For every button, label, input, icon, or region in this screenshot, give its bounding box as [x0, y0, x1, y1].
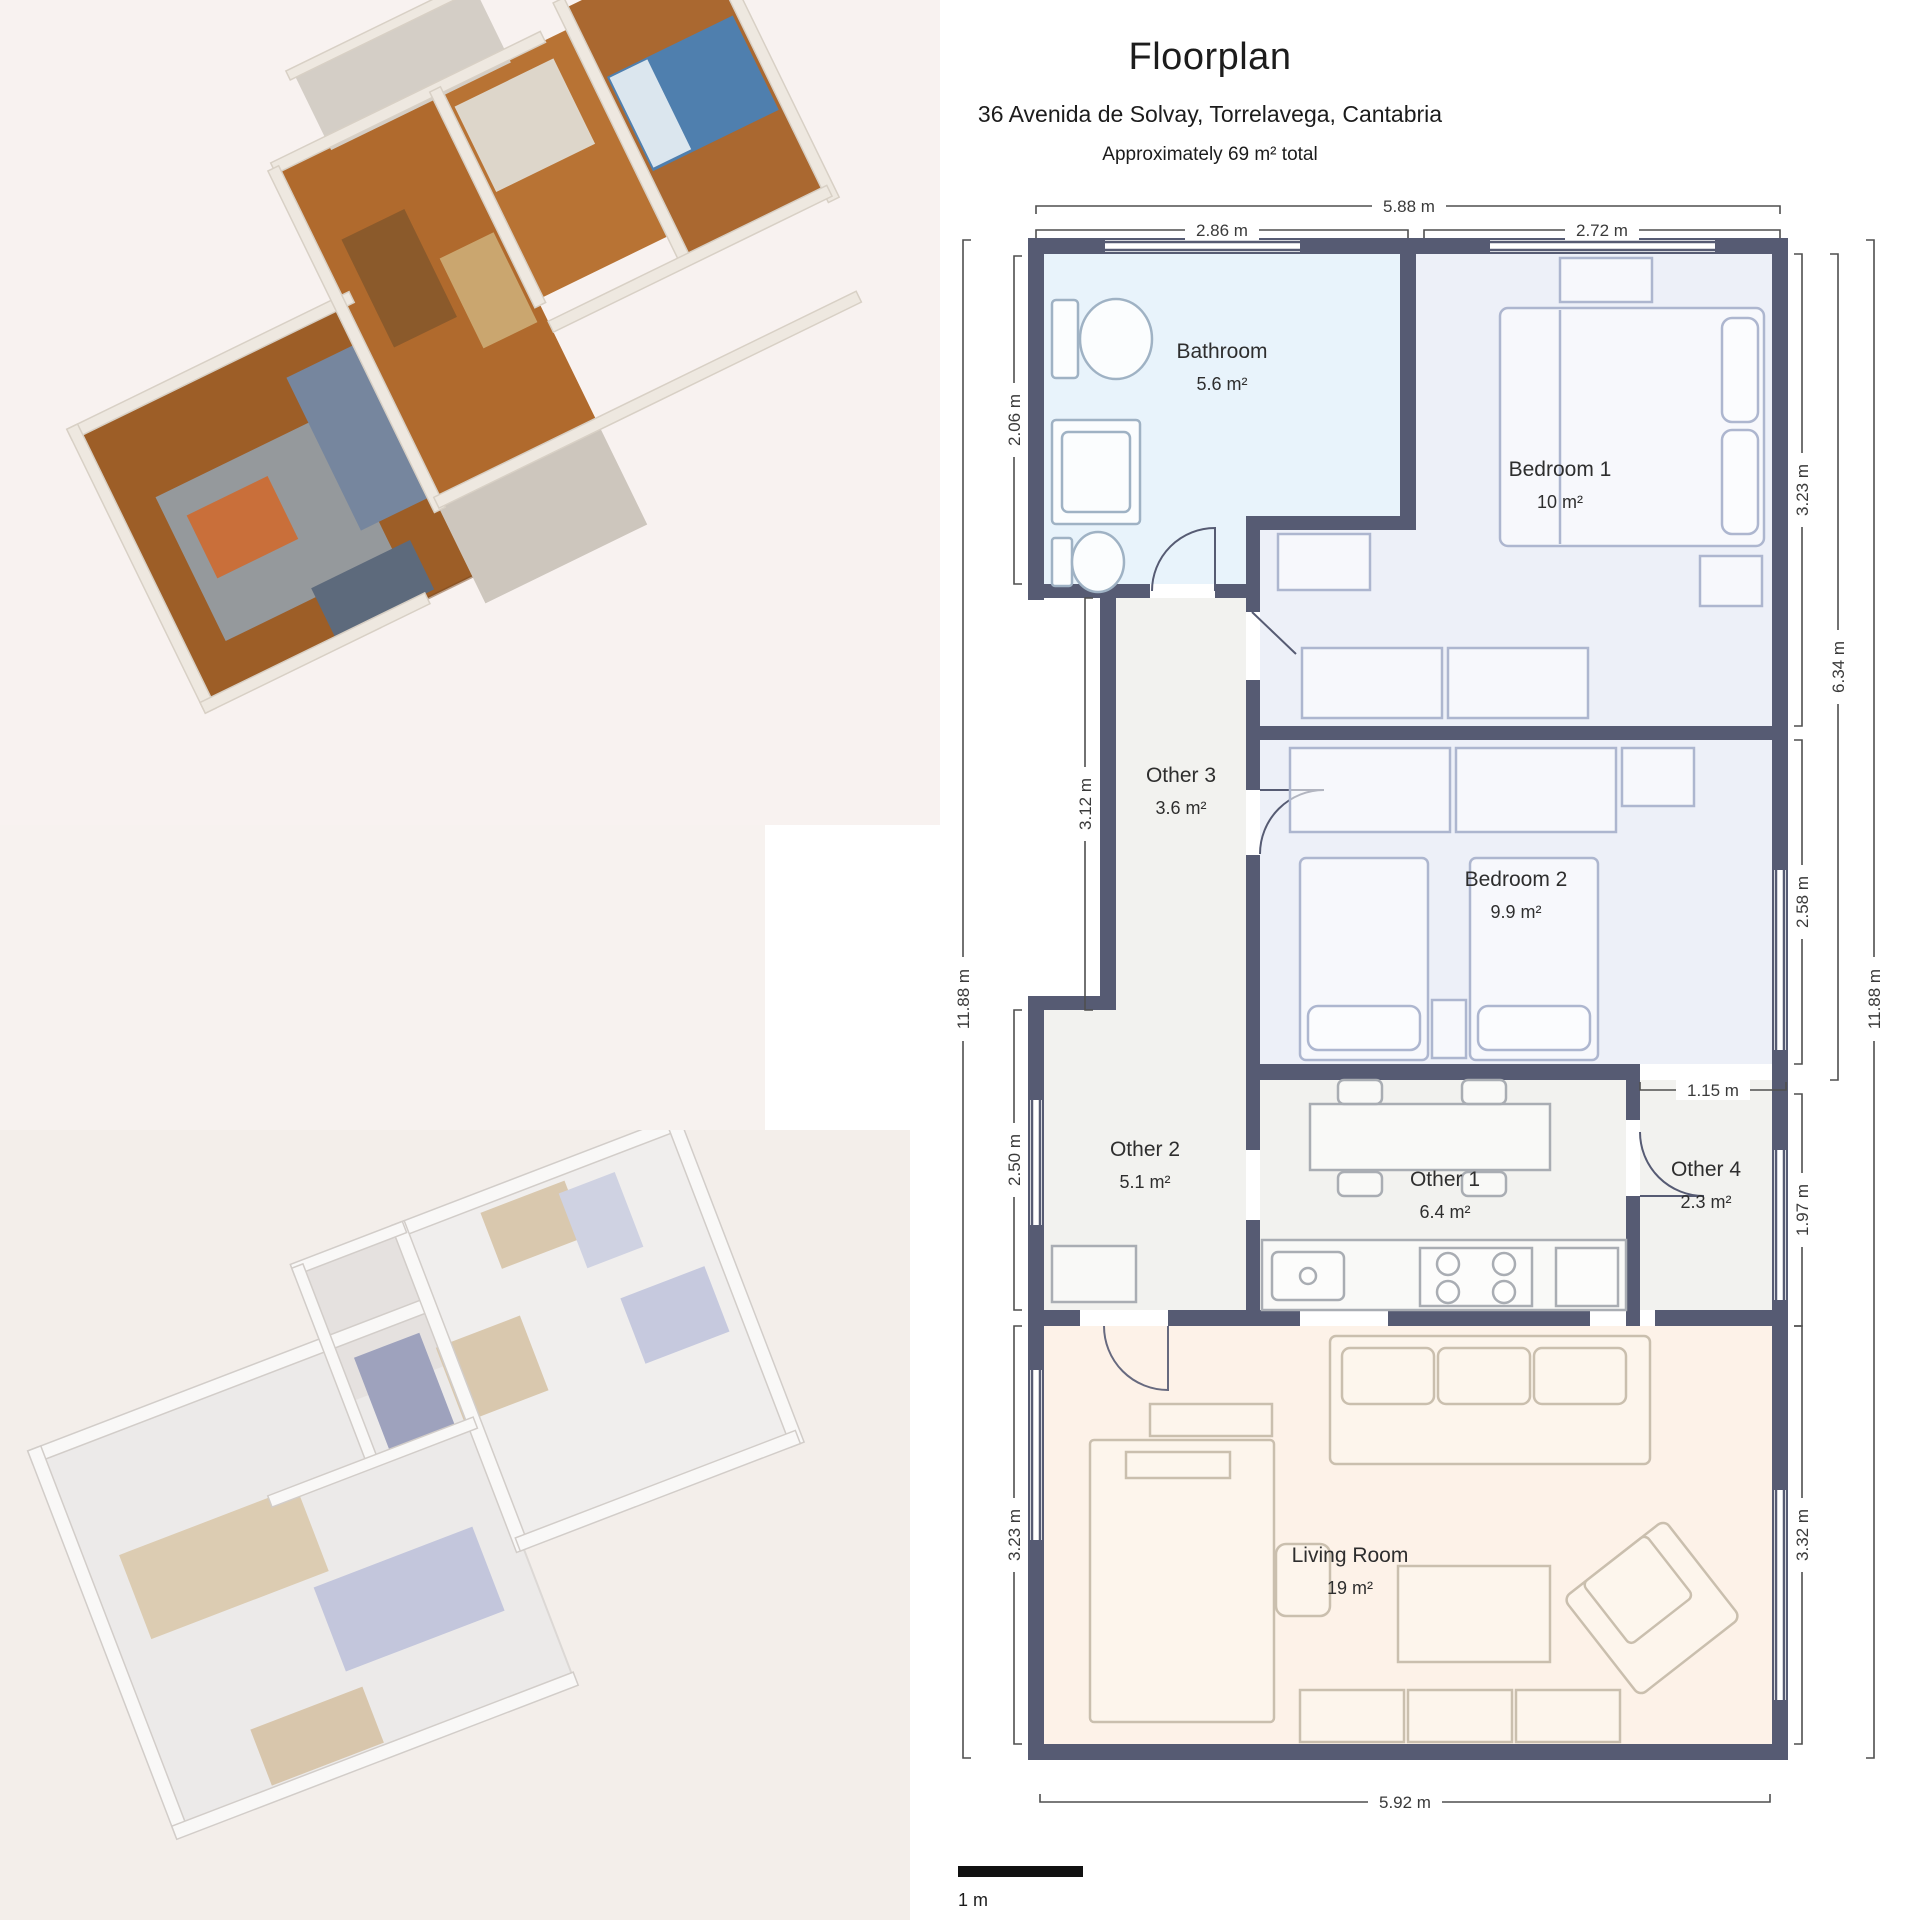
bedroom2-area: 9.9 m² [1490, 902, 1541, 922]
bedroom1-area: 10 m² [1537, 492, 1583, 512]
dim-bottom-total: 5.92 m [1379, 1793, 1431, 1812]
living-label: Living Room [1292, 1544, 1409, 1567]
dim-right-bedroom1: 3.23 m [1793, 464, 1812, 516]
dim-left-bathroom: 2.06 m [1005, 394, 1024, 446]
other1-area: 6.4 m² [1419, 1202, 1470, 1222]
other4-area: 2.3 m² [1680, 1192, 1731, 1212]
scale-bar-label: 1 m [958, 1890, 988, 1910]
dim-left-other2: 2.50 m [1005, 1134, 1024, 1186]
dim-top-bathroom: 2.86 m [1196, 221, 1248, 240]
dim-left-hallway: 3.12 m [1076, 778, 1095, 830]
other3-label: Other 3 [1146, 764, 1216, 787]
floorplan-drawing: Bathroom 5.6 m² Bedroom 1 10 m² Other 3 … [0, 0, 1920, 1920]
living-area: 19 m² [1327, 1578, 1373, 1598]
dim-top-bedroom1: 2.72 m [1576, 221, 1628, 240]
dim-right-other4: 1.97 m [1793, 1184, 1812, 1236]
other2-furniture [1052, 1246, 1136, 1302]
dim-right-bedrooms: 6.34 m [1829, 641, 1848, 693]
page: Floorplan 36 Avenida de Solvay, Torrelav… [0, 0, 1920, 1920]
dim-right-total: 11.88 m [1865, 969, 1884, 1029]
other2-label: Other 2 [1110, 1138, 1180, 1161]
other3-area: 3.6 m² [1155, 798, 1206, 818]
bedroom2-label: Bedroom 2 [1465, 868, 1568, 891]
bedroom1-label: Bedroom 1 [1509, 458, 1612, 481]
scale-bar: 1 m [958, 1866, 1083, 1910]
other2-area: 5.1 m² [1119, 1172, 1170, 1192]
dim-passage: 1.15 m [1687, 1081, 1739, 1100]
bathroom-label: Bathroom [1176, 340, 1267, 363]
bathroom-area: 5.6 m² [1196, 374, 1247, 394]
dim-left-total: 11.88 m [954, 969, 973, 1029]
dim-top-total: 5.88 m [1383, 197, 1435, 216]
other4-label: Other 4 [1671, 1158, 1741, 1181]
dim-right-living: 3.32 m [1793, 1509, 1812, 1561]
dim-right-bedroom2: 2.58 m [1793, 876, 1812, 928]
dim-left-living: 3.23 m [1005, 1509, 1024, 1561]
other1-label: Other 1 [1410, 1168, 1480, 1191]
